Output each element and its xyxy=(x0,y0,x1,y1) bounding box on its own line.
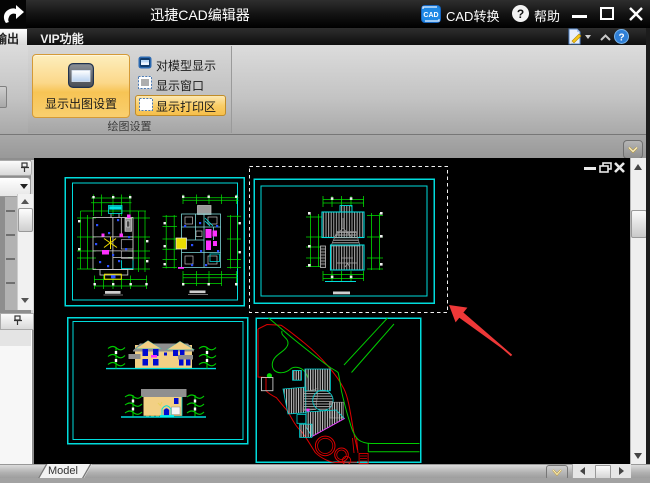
svg-text:?: ? xyxy=(517,7,524,21)
svg-text:?: ? xyxy=(618,33,624,44)
svg-text:CAD: CAD xyxy=(423,12,438,19)
